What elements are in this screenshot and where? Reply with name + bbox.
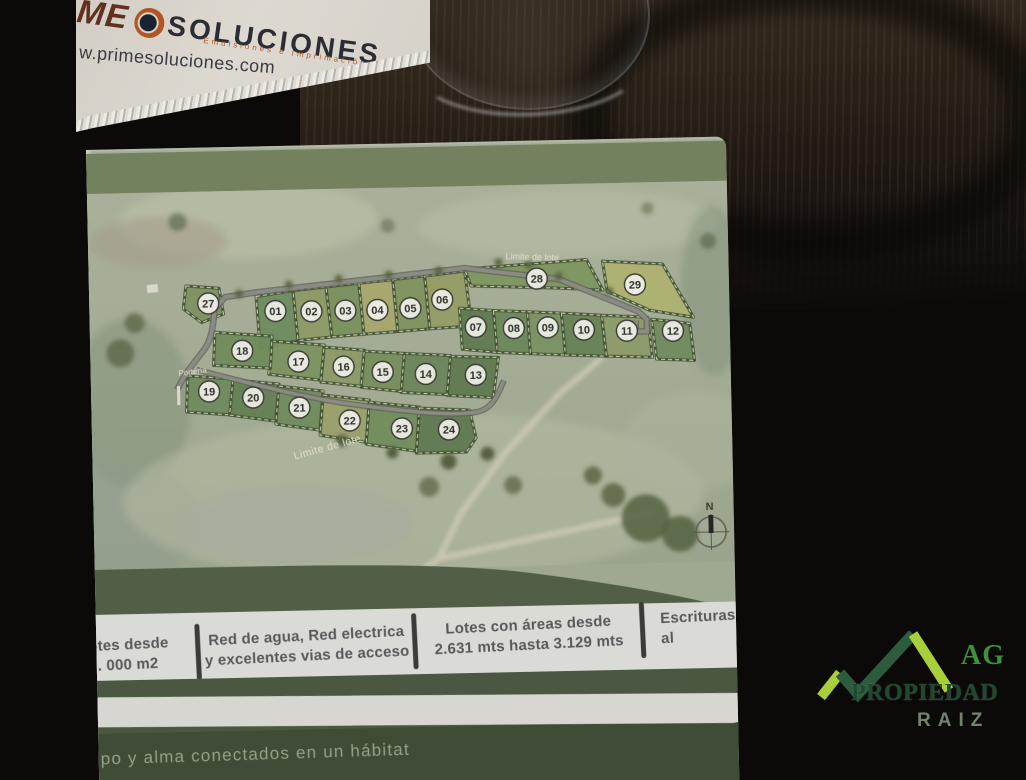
lot-badge-11: 11 [616,320,637,341]
lot-badge-09: 09 [537,317,558,338]
svg-text:02: 02 [305,306,317,318]
svg-text:01: 01 [269,306,281,318]
svg-text:04: 04 [371,305,384,317]
svg-text:15: 15 [376,367,388,379]
svg-text:23: 23 [396,423,408,435]
logo-line3: RAIZ [917,710,989,732]
lot-badge-14: 14 [415,363,436,384]
brochure-page: Limite de lote Limite de lote Portería N… [86,137,740,780]
lot-badge-02: 02 [301,301,322,322]
lot-badge-16: 16 [333,356,354,377]
lot-badge-10: 10 [573,319,594,340]
svg-text:19: 19 [203,386,215,398]
footer-white-stripe [90,693,740,728]
svg-text:13: 13 [470,370,482,382]
feature-lot-size: otes desde 0. 000 m2 [88,632,197,678]
svg-text:08: 08 [508,323,520,335]
lot-map: Limite de lote Limite de lote Portería N… [87,181,735,575]
svg-text:11: 11 [621,326,633,338]
lot-badge-19: 19 [198,381,219,402]
svg-text:21: 21 [293,402,305,414]
logo-line1: AG [961,640,1005,672]
lot-badge-05: 05 [400,298,421,319]
gate-marker [177,386,180,405]
feature-areas: Lotes con áreas desde 2.631 mts hasta 3.… [417,610,641,661]
lot-badge-23: 23 [391,418,412,439]
lot-badge-29: 29 [624,274,645,295]
svg-text:17: 17 [292,356,304,368]
svg-text:03: 03 [339,305,351,317]
svg-text:10: 10 [578,324,590,336]
lot-badge-21: 21 [289,397,310,418]
lot-badge-06: 06 [431,289,452,310]
photo-scene: MESOLUCIONES. Emulsiones e Imprimación w… [0,0,1026,780]
svg-text:09: 09 [542,322,554,334]
lot-badge-07: 07 [465,316,486,337]
lot-map-svg: Limite de lote Limite de lote Portería N… [87,181,735,575]
svg-text:06: 06 [436,294,448,306]
lot-badge-20: 20 [243,387,264,408]
ag-propiedad-raiz-logo: AG PROPIEDAD RAIZ [813,620,1019,738]
lot-badge-01: 01 [265,300,286,321]
svg-text:27: 27 [202,298,214,310]
svg-text:20: 20 [247,392,259,404]
feature-line: Escrituras al [660,605,737,649]
svg-text:07: 07 [470,322,482,334]
lot-badge-28: 28 [526,268,547,289]
feature-deeds: Escrituras al [644,605,737,650]
svg-text:05: 05 [404,303,416,315]
lot-badge-22: 22 [339,410,360,431]
lot-badge-04: 04 [367,299,388,320]
svg-text:12: 12 [667,326,679,338]
svg-text:16: 16 [337,362,349,374]
lot-badge-18: 18 [232,340,253,361]
lot-badge-17: 17 [288,351,309,372]
building [146,284,158,293]
prime-soluciones-card: MESOLUCIONES. Emulsiones e Imprimación w… [76,0,430,132]
lot-badge-13: 13 [465,364,486,385]
limit-label-top: Limite de lote [505,251,559,263]
svg-text:29: 29 [629,279,641,291]
prime-soluciones-logo-icon [132,6,166,40]
svg-text:22: 22 [343,415,355,427]
svg-text:28: 28 [531,273,543,285]
lot-badge-15: 15 [372,361,393,382]
svg-text:14: 14 [420,369,433,381]
lot-badge-08: 08 [503,317,524,338]
feature-utilities: Red de agua, Red electrica y excelentes … [200,621,414,672]
svg-text:24: 24 [443,424,456,436]
logo-line2: PROPIEDAD [851,680,998,707]
lot-badge-27: 27 [198,293,219,314]
card-brand-fragment: ME [75,0,131,36]
lot-badge-03: 03 [335,300,356,321]
compass-north-label: N [705,501,713,513]
svg-text:18: 18 [236,346,248,358]
lot-badge-24: 24 [438,419,459,440]
feature-line: 0. 000 m2 [89,652,197,677]
lot-badge-12: 12 [662,320,683,341]
